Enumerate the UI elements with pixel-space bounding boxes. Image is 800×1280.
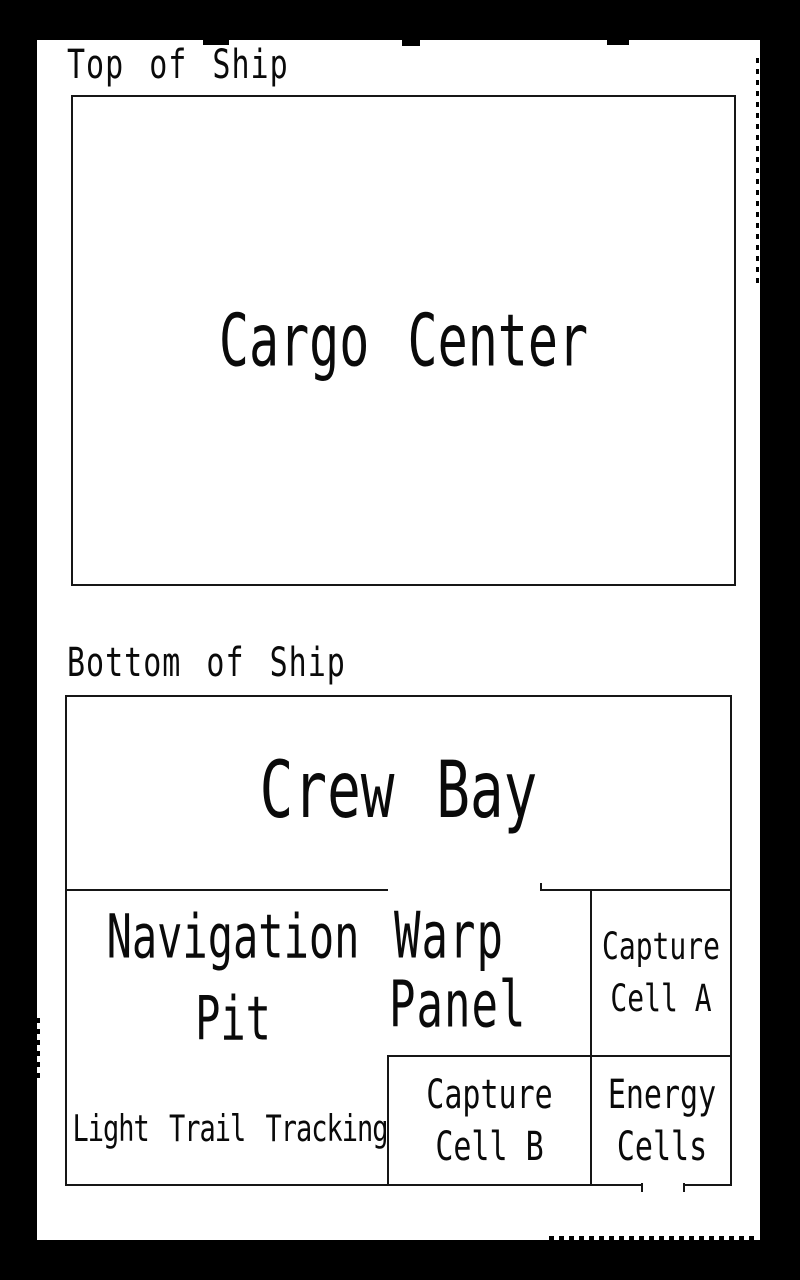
warp-panel-label-line2: Panel bbox=[389, 967, 509, 1045]
energy-cells-label-line2: Cells bbox=[617, 1112, 707, 1182]
navigation-pit-label-line2: Pit bbox=[65, 981, 401, 1056]
cargo-center-room-label: Cargo Center bbox=[219, 297, 588, 384]
capture-cell-b-room: Capture Cell B bbox=[389, 1057, 590, 1186]
scan-dashes-right-edge bbox=[756, 58, 759, 288]
scan-tooth-3 bbox=[607, 40, 629, 45]
navigation-pit-label-line1: Navigation bbox=[65, 899, 401, 974]
capture-cell-a-label-line2: Cell A bbox=[610, 964, 711, 1034]
wall-crewbay-left bbox=[65, 889, 388, 891]
doorjamb-tick-crewbay bbox=[540, 883, 542, 891]
scan-dashes-bottom-edge bbox=[549, 1236, 757, 1240]
capture-cell-a-room: Capture Cell A bbox=[590, 891, 732, 1055]
scan-background: { "colors": { "background": "#000000", "… bbox=[0, 0, 800, 1280]
capture-cell-b-label-line2: Cell B bbox=[435, 1112, 543, 1182]
scan-dashes-left-edge bbox=[37, 1018, 40, 1084]
bottom-deck-label: Bottom of Ship bbox=[67, 640, 346, 689]
light-trail-tracking-label: Light Trail Tracking bbox=[65, 1103, 395, 1157]
crew-bay-room-label: Crew Bay bbox=[65, 739, 732, 845]
scan-tooth-2 bbox=[402, 40, 420, 46]
cargo-center-room: Cargo Center bbox=[71, 95, 736, 586]
energy-cells-room: Energy Cells bbox=[592, 1057, 732, 1186]
scan-tooth-1 bbox=[203, 40, 229, 45]
top-deck-label: Top of Ship bbox=[67, 42, 289, 91]
warp-panel-label-line1: Warp bbox=[389, 898, 509, 976]
blueprint-paper: Top of Ship Cargo Center Bottom of Ship … bbox=[37, 40, 760, 1240]
